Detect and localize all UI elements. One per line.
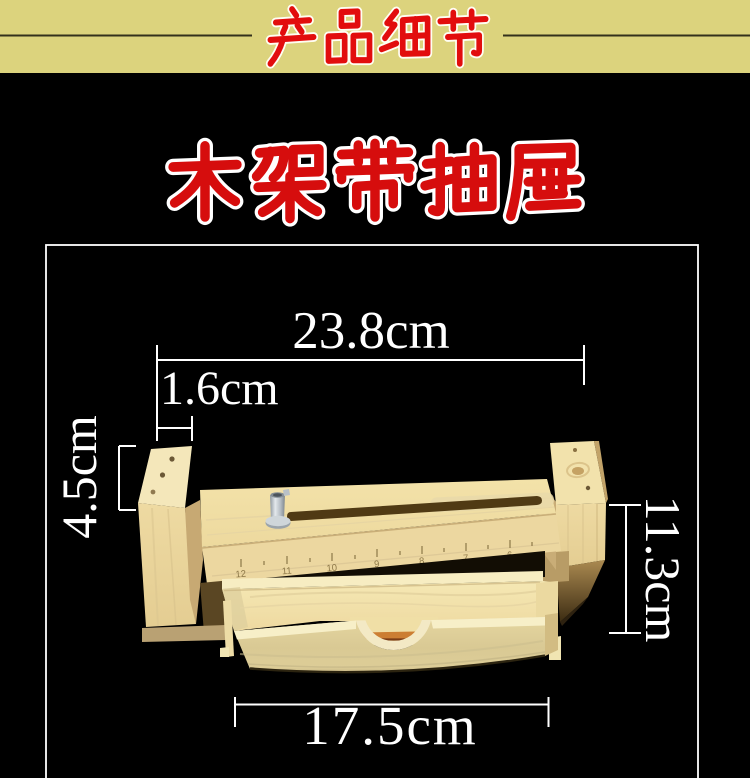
svg-text:1.6cm: 1.6cm	[160, 362, 279, 415]
svg-text:23.8cm: 23.8cm	[292, 302, 450, 360]
svg-text:11.3cm: 11.3cm	[635, 496, 691, 643]
svg-text:4.5cm: 4.5cm	[51, 415, 107, 539]
svg-text:17.5cm: 17.5cm	[302, 695, 477, 756]
